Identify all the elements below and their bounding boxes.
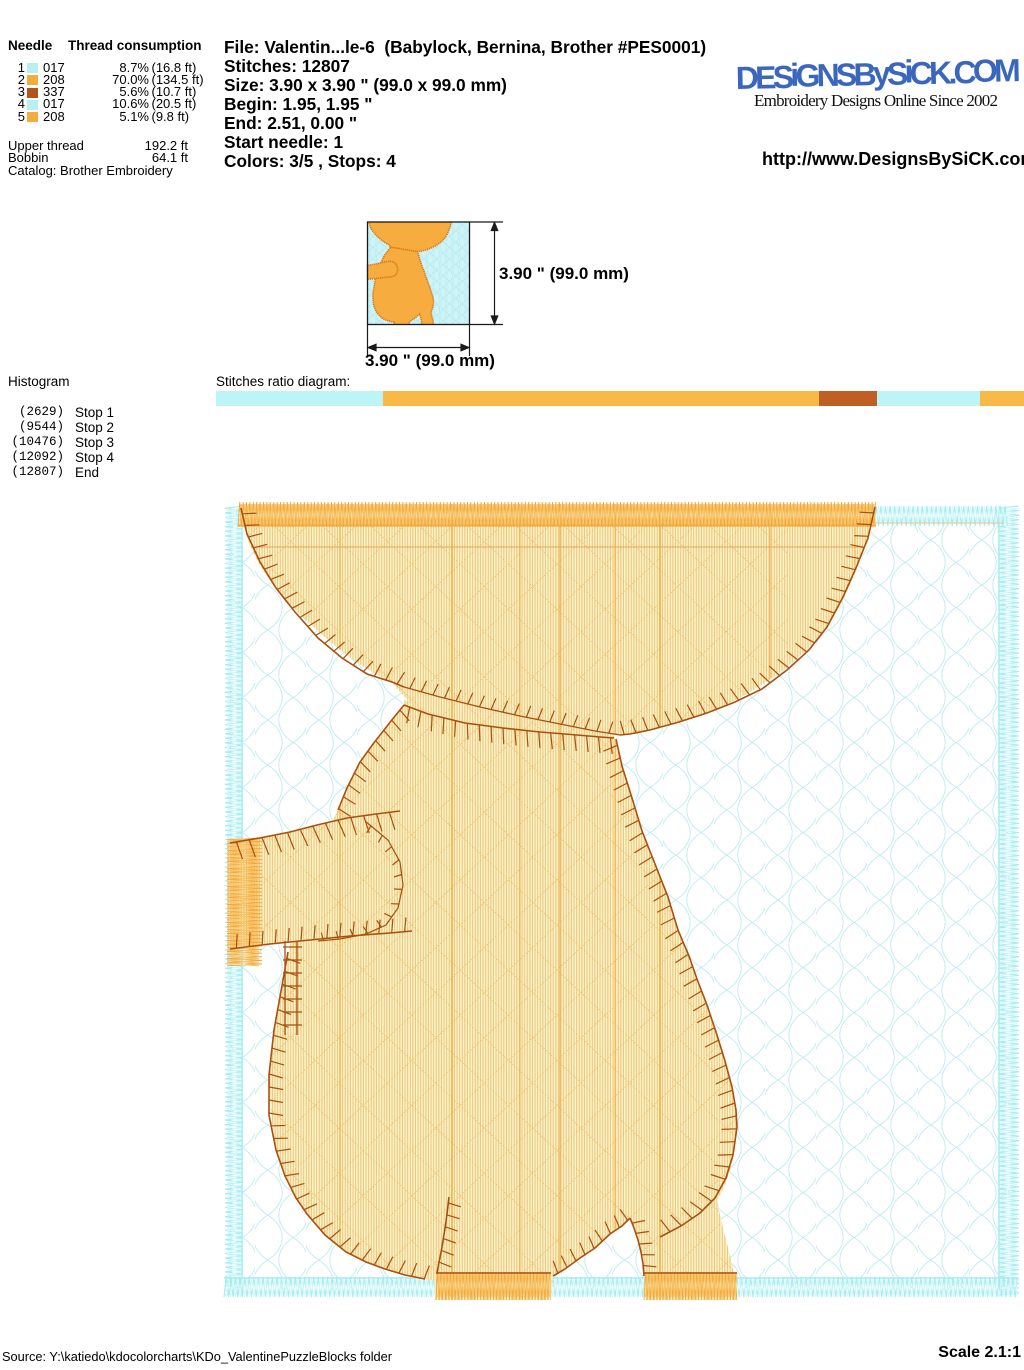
svg-text:Embroidery Designs Online Sinc: Embroidery Designs Online Since 2002 (754, 91, 998, 110)
svg-text:DESiGNSBySiCK.COM: DESiGNSBySiCK.COM (735, 51, 1021, 96)
